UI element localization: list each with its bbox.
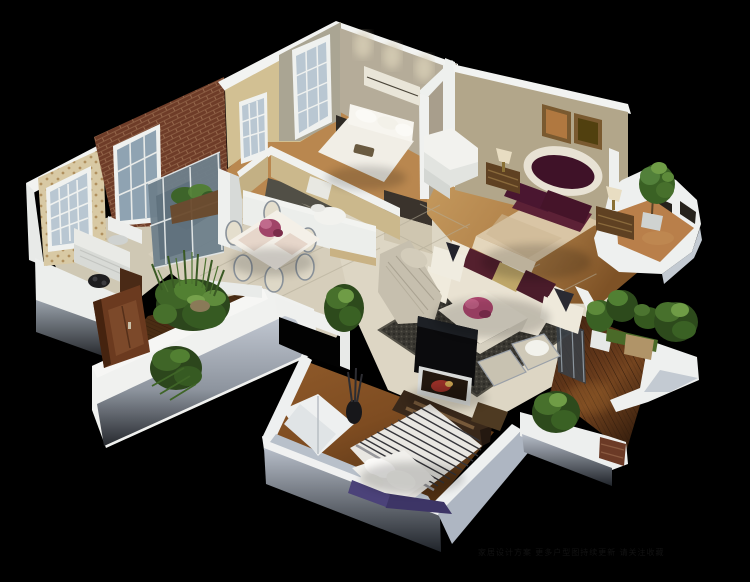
svg-text:家居设计方案 更多户型图持续更新 请关注收藏: 家居设计方案 更多户型图持续更新 请关注收藏 xyxy=(478,547,664,557)
